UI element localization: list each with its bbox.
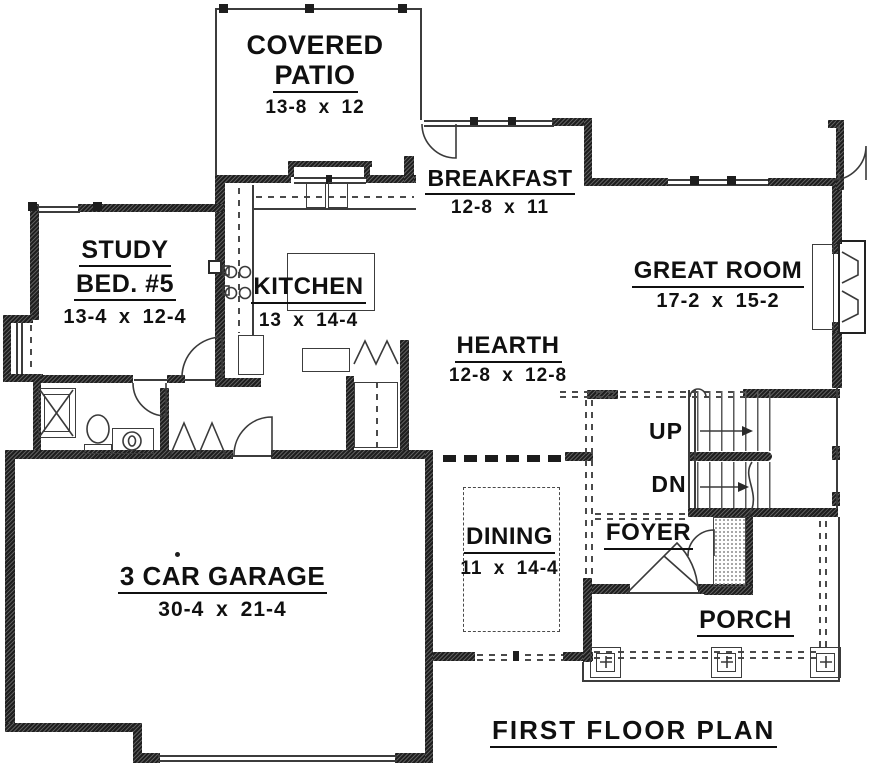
room-name: HEARTH [455, 333, 562, 363]
room-name: FOYER [604, 520, 693, 550]
study-entry-door-swing [182, 337, 222, 377]
room-dimensions: 13-4 x 12-4 [50, 306, 200, 328]
room-dimensions: 13 x 14-4 [246, 310, 371, 331]
side-door-swing [832, 146, 866, 180]
room-label-study: STUDY BED. #5 13-4 x 12-4 [50, 236, 200, 328]
room-name: BREAKFAST [425, 166, 574, 195]
bath-sink-drain [129, 436, 136, 446]
room-label-porch: PORCH [688, 606, 803, 637]
stairs-down-arrowhead [738, 482, 749, 492]
shower-x-mark [40, 390, 73, 436]
stairs-down-label: DN [649, 472, 689, 498]
room-label-kitchen: KITCHEN 13 x 14-4 [246, 274, 371, 331]
room-name: STUDY [79, 236, 170, 267]
bath-door-swing [133, 383, 166, 416]
front-door-swing [628, 543, 698, 592]
fireplace-firebox-lines [842, 252, 858, 322]
drawing-title: FIRST FLOOR PLAN [490, 716, 760, 748]
stairs-up-label: UP [646, 419, 686, 445]
room-name: KITCHEN [251, 274, 365, 304]
breakfast-door-swing [422, 124, 456, 158]
stove-burner [226, 267, 237, 278]
room-label-breakfast: BREAKFAST 12-8 x 11 [420, 166, 580, 218]
room-dimensions: 12-8 x 11 [420, 197, 580, 218]
room-name: 3 CAR GARAGE [118, 562, 327, 594]
room-name: BED. #5 [74, 270, 176, 301]
floor-plan: COVERED PATIO 13-8 x 12 BREAKFAST 12-8 x… [0, 0, 869, 768]
stove-burner [226, 288, 237, 299]
room-label-dining: DINING 11 x 14-4 [452, 524, 567, 579]
room-dimensions: 17-2 x 15-2 [628, 290, 808, 312]
hall-closet-bifold-doors [170, 423, 226, 456]
pantry-bifold-doors [354, 341, 398, 364]
stair-break-line [749, 462, 754, 516]
fixtures-overlay [0, 0, 869, 768]
room-label-great-room: GREAT ROOM 17-2 x 15-2 [628, 258, 808, 312]
room-label-foyer: FOYER [596, 520, 701, 550]
room-name: PATIO [273, 60, 358, 93]
room-dimensions: 11 x 14-4 [452, 558, 567, 579]
room-label-hearth: HEARTH 12-8 x 12-8 [443, 333, 573, 386]
room-dimensions: 30-4 x 21-4 [115, 598, 330, 622]
room-label-garage: 3 CAR GARAGE 30-4 x 21-4 [115, 562, 330, 622]
room-name: GREAT ROOM [632, 258, 805, 288]
drawing-title-text: FIRST FLOOR PLAN [490, 716, 777, 748]
room-name: COVERED [225, 30, 405, 60]
stair-newel-cap [690, 389, 706, 397]
room-name: DINING [464, 524, 555, 554]
stairs-up-arrowhead [742, 426, 753, 436]
garage-entry-door-swing [234, 417, 272, 455]
porch-column-cross [600, 656, 832, 668]
toilet-bowl [87, 415, 109, 443]
bath-sink-basin [123, 432, 141, 450]
room-label-covered-patio: COVERED PATIO 13-8 x 12 [225, 30, 405, 119]
room-dimensions: 12-8 x 12-8 [443, 365, 573, 386]
room-name: PORCH [697, 606, 794, 637]
room-dimensions: 13-8 x 12 [225, 97, 405, 118]
